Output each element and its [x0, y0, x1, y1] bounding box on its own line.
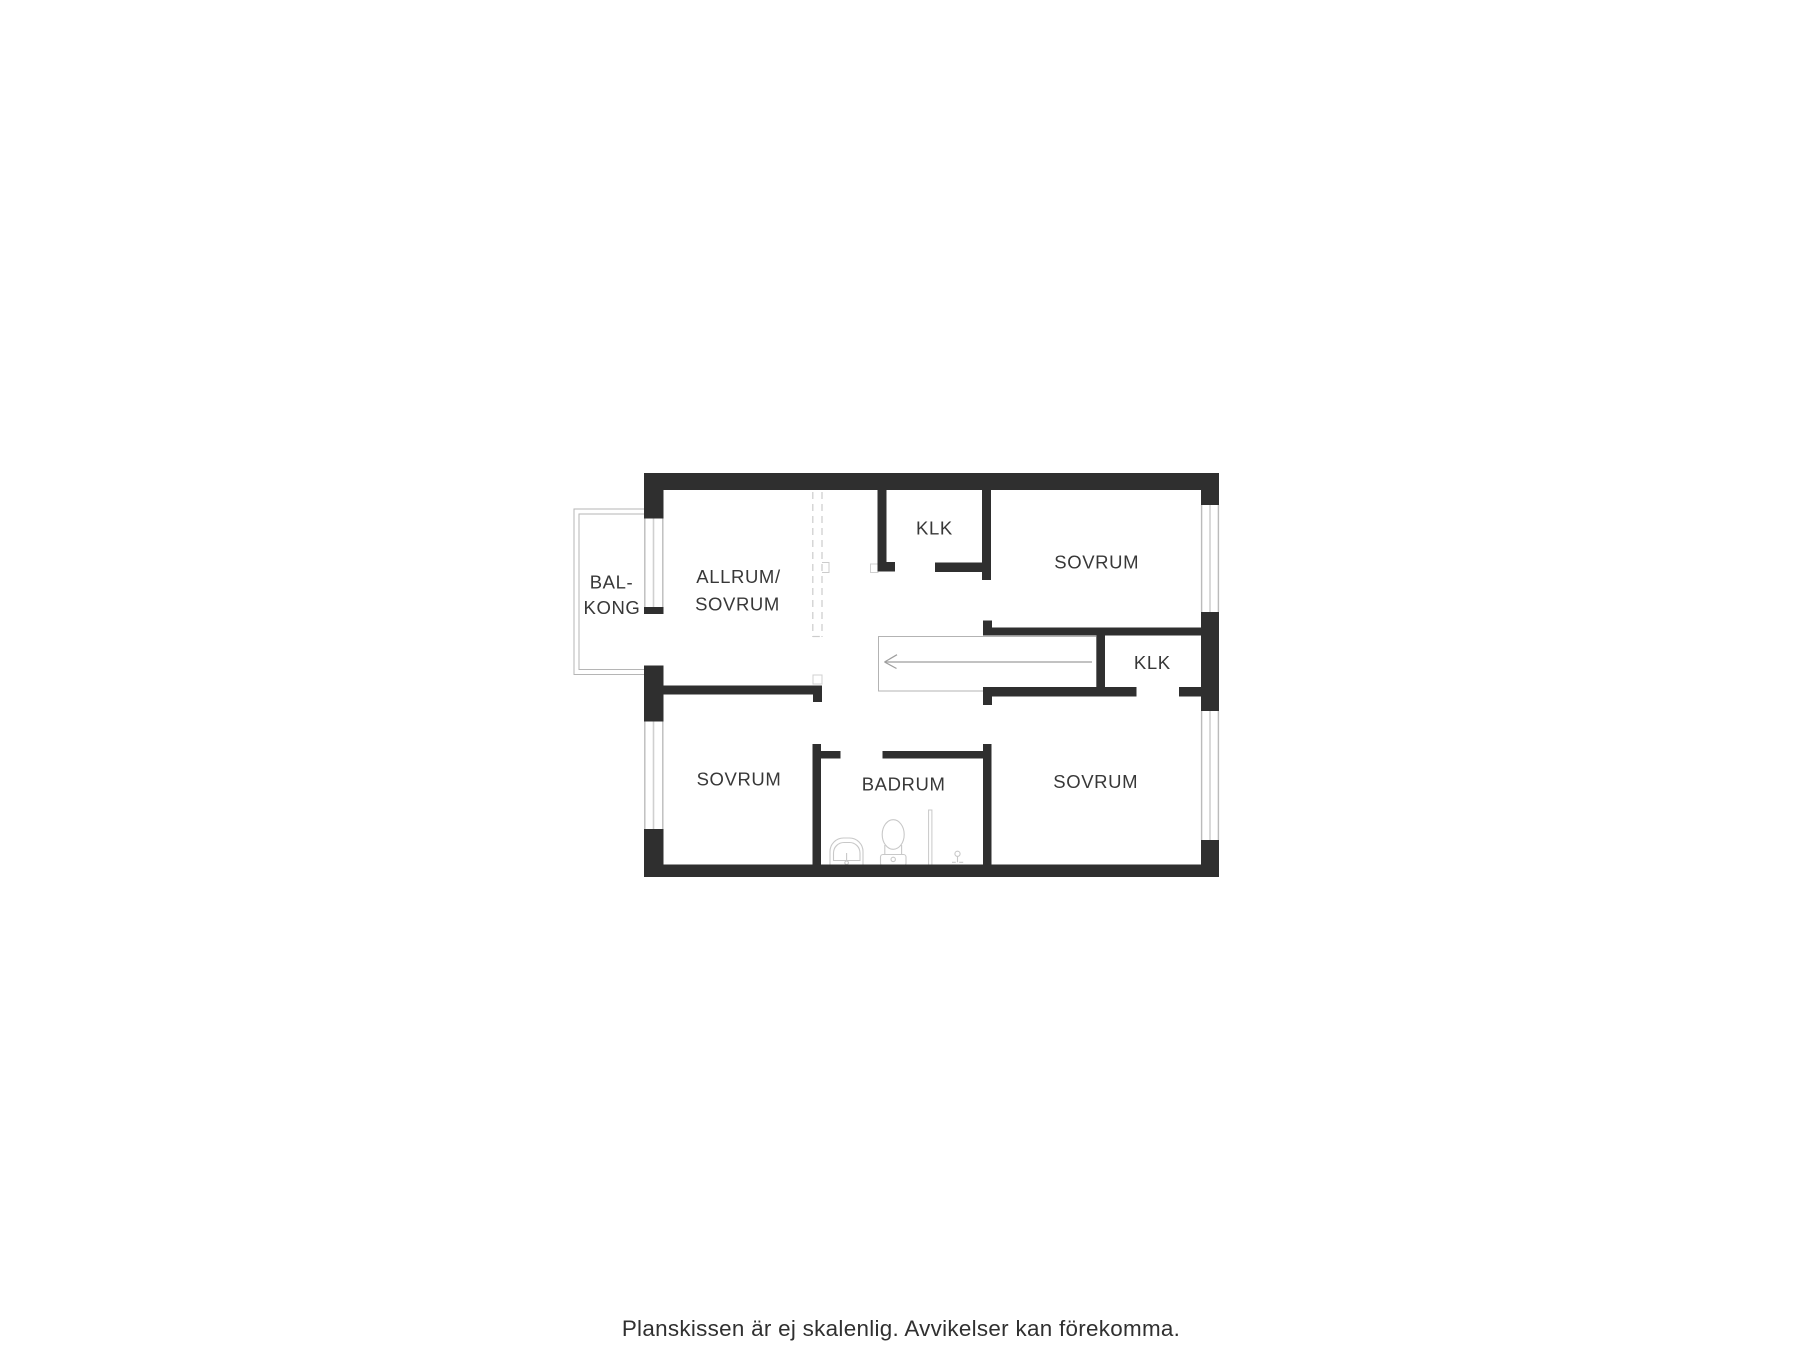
svg-text:Planskissen är ej skalenlig. A: Planskissen är ej skalenlig. Avvikelser … [622, 1316, 1180, 1341]
svg-text:ALLRUM/: ALLRUM/ [696, 566, 781, 587]
svg-text:SOVRUM: SOVRUM [697, 769, 782, 790]
svg-text:KONG: KONG [584, 597, 641, 618]
svg-text:BAL-: BAL- [590, 571, 634, 592]
svg-text:KLK: KLK [1134, 652, 1171, 673]
svg-text:SOVRUM: SOVRUM [1053, 771, 1138, 792]
svg-text:SOVRUM: SOVRUM [695, 593, 780, 614]
svg-text:BADRUM: BADRUM [862, 773, 946, 794]
svg-text:KLK: KLK [916, 517, 953, 538]
svg-text:SOVRUM: SOVRUM [1054, 552, 1139, 573]
